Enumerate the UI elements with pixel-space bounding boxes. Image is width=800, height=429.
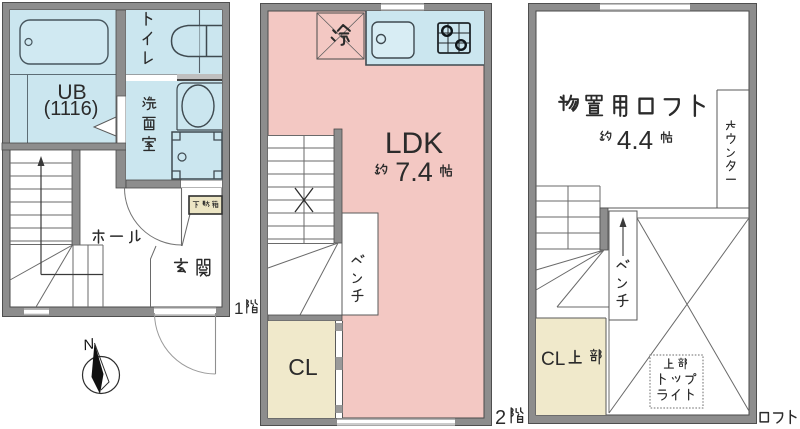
svg-text:(1116): (1116) <box>44 98 99 120</box>
svg-text:7.4: 7.4 <box>395 157 433 187</box>
svg-text:2: 2 <box>495 407 506 429</box>
svg-text:CL: CL <box>541 349 565 370</box>
svg-text:LDK: LDK <box>385 127 443 160</box>
svg-text:4.4: 4.4 <box>617 125 653 155</box>
svg-text:N: N <box>82 335 96 354</box>
svg-text:CL: CL <box>288 354 318 380</box>
svg-text:1: 1 <box>234 299 243 318</box>
